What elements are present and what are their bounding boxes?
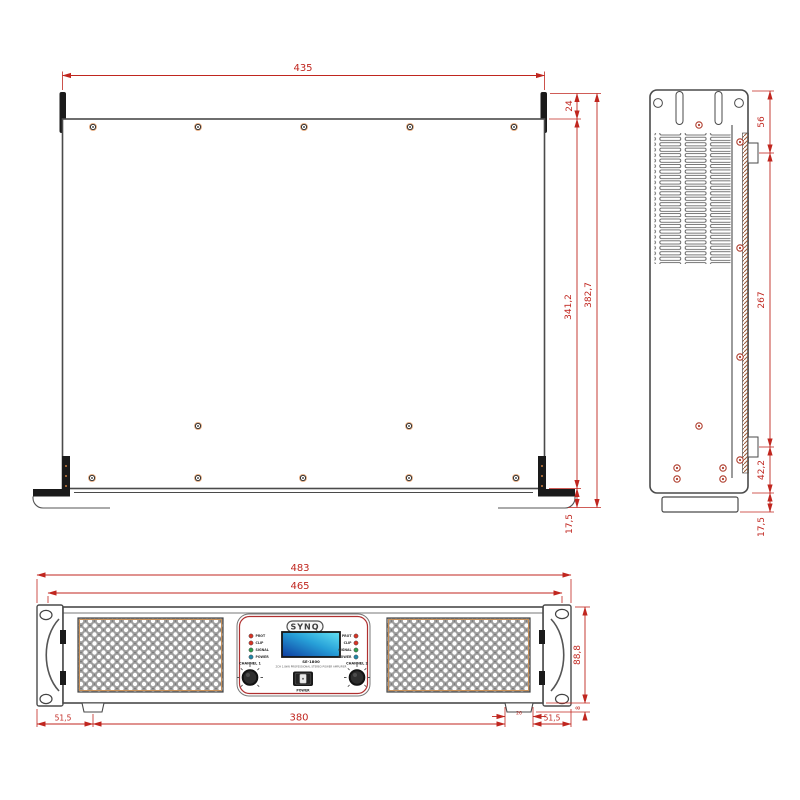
dim-front-height: 88,8 [573,645,583,665]
led-prot-right [354,634,358,638]
power-switch[interactable] [293,672,313,687]
led-clip-left [249,641,253,645]
dim-foot-width: 26 [516,711,522,717]
dim-handle-offset: 17,5 [565,514,575,534]
ear-hole-tr [556,609,569,618]
led-label-signal-right: SIGNAL [338,648,351,652]
grille-right [387,618,530,692]
led-label-clip-right: CLIP [344,641,353,645]
front-view: SYNQ PROT CLIP SIGNAL POWER PROT CLIP SI… [37,563,590,727]
handle-top-left [33,497,110,509]
ear-hole-bl [40,694,52,703]
rail-tab-top [748,143,758,163]
side-view: 56 267 42,2 17,5 [650,90,774,537]
handle-mount-rb [539,671,545,685]
led-signal-right [354,648,358,652]
led-label-prot-left: PROT [256,634,267,638]
rail-hatch-strip [743,133,749,473]
dim-side-top: 56 [757,116,767,128]
dim-feet-span: 380 [289,713,308,724]
handle-mount-lt [60,630,66,644]
led-label-prot-right: PROT [342,634,353,638]
model-subtitle: 2CH 1.8kW PROFESSIONAL STEREO POWER AMPL… [276,665,347,669]
rack-ear-front-right [543,605,571,706]
power-switch-label: POWER [296,689,310,693]
led-clip-right [354,641,358,645]
model-label: SE-1800 [302,659,320,664]
dim-side-bottom: 42,2 [757,460,767,480]
dim-top-width: 435 [293,63,312,74]
dim-rear-flange: 24 [565,100,575,112]
ear-hole-br [556,694,569,703]
led-power-right [354,655,358,659]
led-label-power-left: POWER [256,655,270,659]
led-label-clip-left: CLIP [256,641,265,645]
dim-front-inner-width: 465 [290,581,309,592]
led-power-left [249,655,253,659]
dim-right-offset: 51,5 [544,714,561,723]
dim-body-depth: 341,2 [564,294,574,320]
led-signal-left [249,648,253,652]
drawing-canvas: 435 24 341,2 382,7 17,5 [0,0,800,800]
technical-drawing: 435 24 341,2 382,7 17,5 [0,0,800,800]
front-foot-left [82,703,104,712]
dim-side-rail: 267 [757,291,767,308]
led-label-power-right: POWER [338,655,352,659]
grille-left [78,618,223,692]
front-center-panel: SYNQ PROT CLIP SIGNAL POWER PROT CLIP SI… [237,614,370,696]
handle-mount-rt [539,630,545,644]
vent-grille [655,133,731,264]
dim-left-offset: 51,5 [55,714,72,723]
top-view: 435 24 341,2 382,7 17,5 [33,63,601,534]
rail-tab-bottom [748,437,758,457]
chassis-top-outline [63,119,545,489]
led-prot-left [249,634,253,638]
handle-top-right [498,497,575,509]
brand-logo: SYNQ [290,623,319,632]
dim-total-depth: 382,7 [584,282,594,308]
dim-front-total-width: 483 [290,563,309,574]
dim-side-foot: 17,5 [757,517,767,537]
side-foot [662,497,738,512]
lcd-display [282,632,340,657]
led-label-signal-left: SIGNAL [256,648,269,652]
ear-hole-tl [40,610,52,619]
handle-mount-lb [60,671,66,685]
dim-front-foot-height: 8 [575,706,582,710]
